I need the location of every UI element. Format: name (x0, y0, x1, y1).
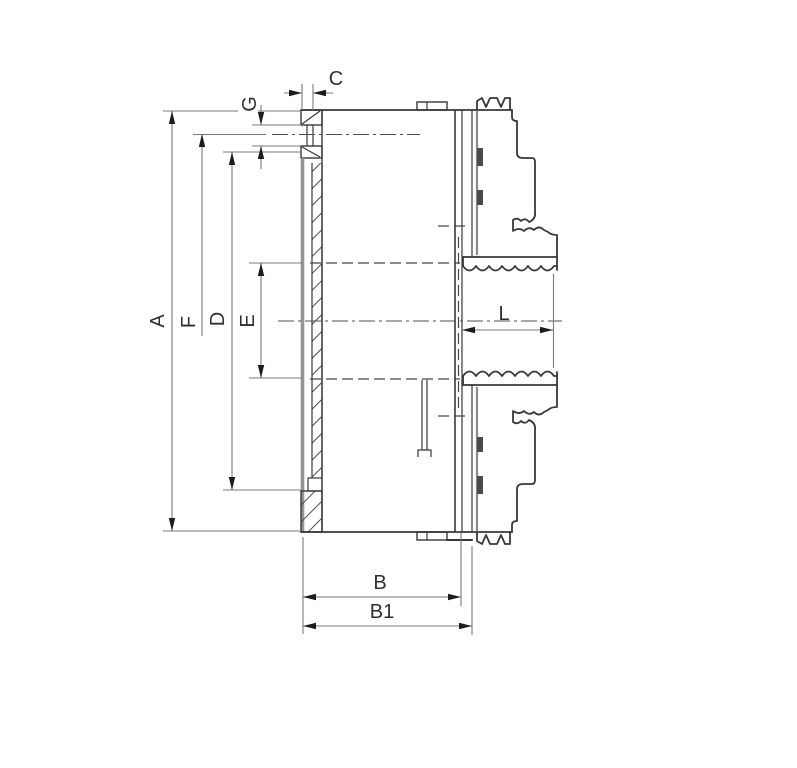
upper-key-tab-2 (477, 190, 483, 205)
upper-tnut-plate (417, 102, 447, 110)
dimension-label-g: G (239, 96, 261, 112)
lower-jaw-crown-serration (477, 532, 510, 544)
upper-key-tab-1 (477, 148, 483, 166)
chuck-cross-section-drawing: A F D E G C L B B1 (0, 0, 797, 768)
lower-jaw-assembly (417, 372, 557, 545)
technical-drawing-page: A F D E G C L B B1 (0, 0, 797, 768)
lower-tnut-plate (417, 532, 472, 540)
upper-jaw-assembly (417, 98, 557, 271)
dimension-label-e: E (237, 314, 259, 327)
lower-key-tab-2 (477, 437, 483, 452)
upper-master-jaw-bar (463, 257, 557, 271)
lower-jaw-profile (512, 372, 557, 532)
dimension-label-a: A (147, 314, 169, 328)
upper-jaw-crown-serration (477, 98, 510, 110)
hatched-flange-band (308, 163, 322, 491)
dimension-label-l: L (498, 303, 509, 325)
dimension-label-d: D (207, 312, 229, 326)
lower-key-tab-1 (477, 476, 483, 494)
lower-slot-detail (418, 380, 431, 457)
dimension-label-b1: B1 (370, 601, 394, 623)
dimension-c (284, 84, 333, 110)
hatched-lower-lug (301, 491, 322, 532)
dimension-g (252, 105, 301, 169)
lower-master-jaw-bar (463, 372, 557, 386)
dimension-label-f: F (178, 316, 200, 328)
dimension-label-b: B (373, 572, 386, 594)
upper-jaw-profile (512, 110, 557, 270)
dimension-label-c: C (329, 68, 343, 90)
